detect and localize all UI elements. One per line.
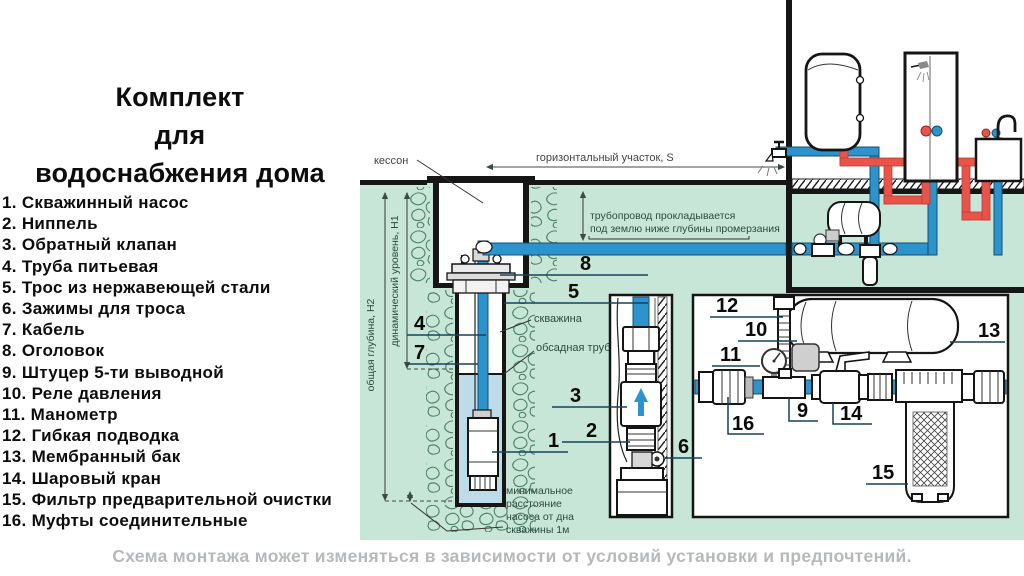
infographic: Комплект для водоснабжения дома 1. Скваж… <box>0 0 1024 576</box>
min-distance-line2: расстояние <box>506 498 562 510</box>
pipeline-note-line2: под землю ниже глубины промерзания <box>590 223 780 235</box>
list-item: 1. Скважинный насос <box>2 192 360 213</box>
total-depth-label: общая глубина, H2 <box>365 298 377 391</box>
svg-text:15: 15 <box>872 462 894 484</box>
coupling-left <box>699 370 753 404</box>
svg-text:8: 8 <box>580 253 591 275</box>
list-item: 13. Мембранный бак <box>2 446 360 467</box>
shower-cold-valve <box>932 126 942 136</box>
svg-text:9: 9 <box>797 400 808 422</box>
horizontal-section-label: горизонтальный участок, S <box>536 152 674 164</box>
caisson-label: кессон <box>374 155 408 167</box>
svg-text:6: 6 <box>678 436 689 458</box>
min-distance-line4: скважины 1м <box>506 524 569 536</box>
shower-cabin <box>905 53 957 181</box>
list-item: 10. Реле давления <box>2 383 360 404</box>
footer-caption: Схема монтажа может изменяться в зависим… <box>0 546 1024 567</box>
svg-text:16: 16 <box>732 413 754 435</box>
parts-list: 1. Скважинный насос 2. Ниппель 3. Обратн… <box>2 192 360 531</box>
svg-text:10: 10 <box>745 319 767 341</box>
list-item: 12. Гибкая подводка <box>2 425 360 446</box>
filter-mesh <box>913 412 947 486</box>
water-heater <box>806 54 864 150</box>
list-item: 8. Оголовок <box>2 340 360 361</box>
svg-text:1: 1 <box>548 430 559 452</box>
submersible-pump <box>468 410 498 490</box>
svg-text:14: 14 <box>840 403 863 425</box>
list-item: 4. Труба питьевая <box>2 256 360 277</box>
svg-text:7: 7 <box>414 342 425 364</box>
basement-filter-head <box>860 245 880 257</box>
list-item: 16. Муфты соединительные <box>2 510 360 531</box>
min-distance-line1: минимальное <box>506 485 573 497</box>
min-distance-line3: насоса от дна <box>506 511 574 523</box>
shower-hot-valve <box>921 126 931 136</box>
list-item: 5. Трос из нержавеющей стали <box>2 277 360 298</box>
horizontal-section-dimension: горизонтальный участок, S <box>487 152 784 167</box>
coupling-middle <box>868 374 892 400</box>
pressure-relay <box>792 344 819 371</box>
list-item: 3. Обратный клапан <box>2 234 360 255</box>
well-label: скважина <box>534 313 583 325</box>
buried-pipe <box>476 241 786 255</box>
title-line-3: водоснабжения дома <box>8 154 352 192</box>
pre-filter <box>896 370 962 502</box>
svg-text:4: 4 <box>414 313 426 335</box>
pump-intake-grate <box>470 476 496 490</box>
list-item: 9. Штуцер 5-ти выводной <box>2 362 360 383</box>
inset-coupling <box>623 327 659 351</box>
pipeline-note-line1: трубопровод прокладывается <box>590 210 735 222</box>
list-item: 6. Зажимы для троса <box>2 298 360 319</box>
title-line-2: для <box>8 116 352 154</box>
dynamic-level-label: динамический уровень, H1 <box>389 215 401 346</box>
svg-text:2: 2 <box>586 420 597 442</box>
coupling-right <box>962 371 1004 403</box>
list-item: 7. Кабель <box>2 319 360 340</box>
svg-text:13: 13 <box>978 320 1000 342</box>
svg-text:12: 12 <box>716 295 738 317</box>
list-item: 2. Ниппель <box>2 213 360 234</box>
title-line-1: Комплект <box>8 78 352 116</box>
inset-nipple <box>627 428 655 450</box>
list-item: 11. Манометр <box>2 404 360 425</box>
basement-filter-bowl <box>863 257 877 285</box>
page-title: Комплект для водоснабжения дома <box>8 78 352 192</box>
svg-text:3: 3 <box>570 385 581 407</box>
list-item: 14. Шаровый кран <box>2 468 360 489</box>
svg-text:5: 5 <box>568 281 579 303</box>
svg-text:11: 11 <box>720 344 741 366</box>
min-distance-note: минимальное расстояние насоса от дна скв… <box>506 485 574 536</box>
list-item: 15. Фильтр предварительной очистки <box>2 489 360 510</box>
pump-detail-inset <box>610 295 672 517</box>
casing-pipe-label: обсадная труба <box>536 342 617 354</box>
inset-pump-body <box>617 480 667 515</box>
